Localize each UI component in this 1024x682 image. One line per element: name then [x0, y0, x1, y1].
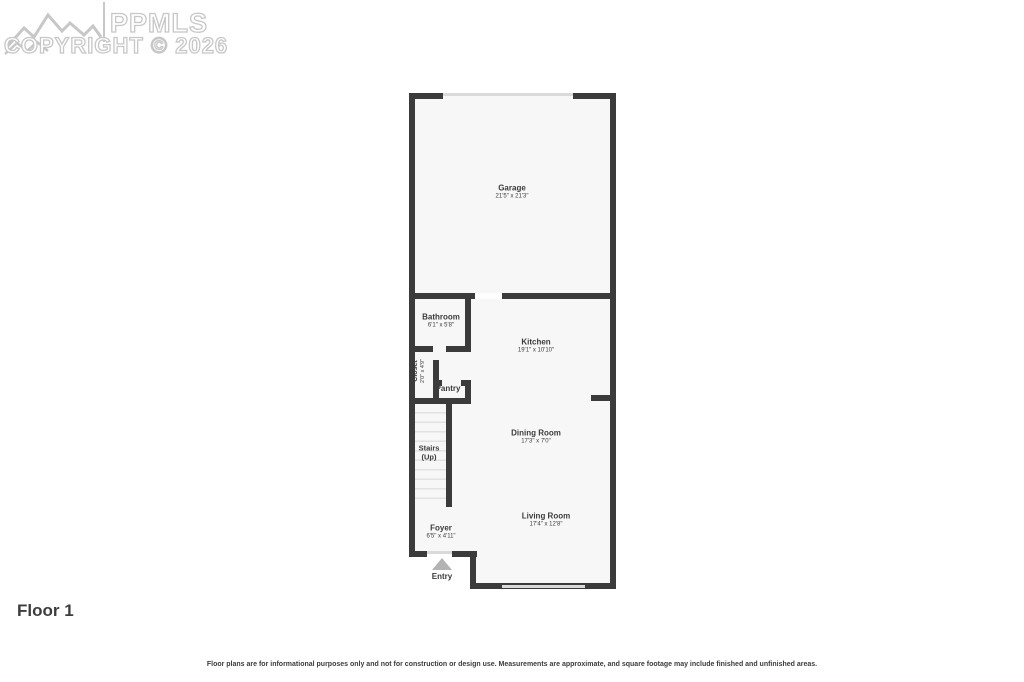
- wall-bathroom-bottom-left: [409, 346, 433, 352]
- pantry-name: Pantry: [436, 384, 461, 394]
- garage-door-opening: [443, 93, 573, 96]
- room-living-lower: [476, 551, 610, 583]
- living-room-name: Living Room: [522, 511, 570, 521]
- watermark: PPMLS COPYRIGHT © 2026: [0, 0, 260, 70]
- living-room-window: [502, 585, 585, 589]
- dining-room-dims: 17'3" x 7'0": [511, 438, 561, 446]
- wall-bathroom-bottom-right: [446, 346, 471, 352]
- garage-name: Garage: [496, 183, 529, 193]
- wall-bathroom-right: [465, 293, 471, 352]
- wall-dining-stub: [591, 395, 610, 401]
- label-closet: Closet 2'0" x 4'9": [412, 359, 428, 383]
- label-kitchen: Kitchen 19'1" x 10'10": [518, 337, 554, 354]
- disclaimer-text: Floor plans are for informational purpos…: [0, 661, 1024, 668]
- label-garage: Garage 21'5" x 21'3": [496, 183, 529, 200]
- entry-name: Entry: [432, 572, 452, 582]
- dining-room-name: Dining Room: [511, 428, 561, 438]
- label-stairs: Stairs (Up): [419, 444, 440, 463]
- label-foyer: Foyer 6'5" x 4'11": [426, 523, 455, 540]
- wall-garage-bottom-right: [502, 293, 616, 299]
- entry-arrow-icon: [432, 558, 452, 570]
- closet-name: Closet: [412, 359, 420, 383]
- stairs-direction: (Up): [419, 453, 440, 463]
- foyer-name: Foyer: [426, 523, 455, 533]
- wall-stairs-top: [409, 398, 471, 404]
- floor-title: Floor 1: [17, 601, 74, 621]
- wall-right: [610, 93, 616, 589]
- wall-top-right: [573, 93, 616, 99]
- bathroom-dims: 6'1" x 5'8": [422, 322, 460, 330]
- bathroom-name: Bathroom: [422, 312, 460, 322]
- label-dining-room: Dining Room 17'3" x 7'0": [511, 428, 561, 445]
- watermark-copyright: COPYRIGHT © 2026: [4, 33, 228, 59]
- living-room-dims: 17'4" x 12'8": [522, 521, 570, 529]
- wall-stairs-right: [446, 404, 452, 507]
- label-bathroom: Bathroom 6'1" x 5'8": [422, 312, 460, 329]
- garage-dims: 21'5" x 21'3": [496, 193, 529, 201]
- kitchen-name: Kitchen: [518, 337, 554, 347]
- label-living-room: Living Room 17'4" x 12'8": [522, 511, 570, 528]
- wall-top-left: [409, 93, 443, 99]
- stairs-name: Stairs: [419, 444, 440, 453]
- entry-door-opening: [427, 551, 452, 554]
- foyer-dims: 6'5" x 4'11": [426, 533, 455, 541]
- closet-dims: 2'0" x 4'9": [421, 359, 428, 383]
- kitchen-dims: 19'1" x 10'10": [518, 347, 554, 355]
- label-entry: Entry: [432, 572, 452, 582]
- wall-foyer-bottom-left: [409, 551, 427, 557]
- wall-left: [409, 93, 415, 557]
- label-pantry: Pantry: [436, 384, 461, 394]
